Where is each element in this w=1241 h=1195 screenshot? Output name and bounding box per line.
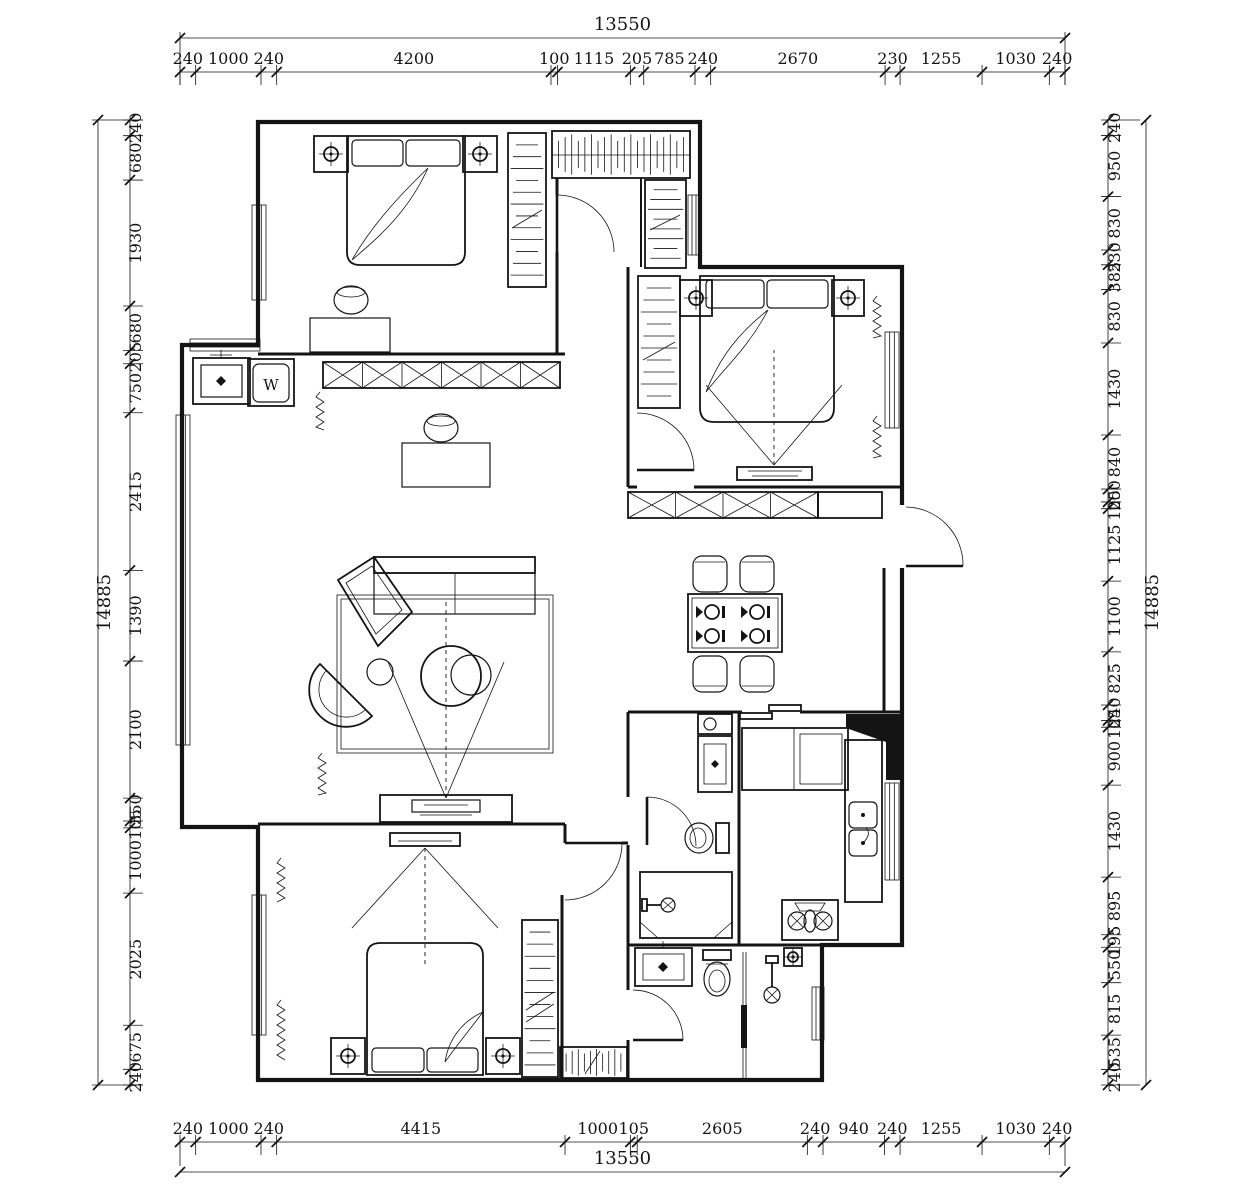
outer-walls [182, 122, 902, 1080]
dim-label: 1430 [1105, 811, 1124, 852]
ceiling-lamp-icon [491, 1044, 515, 1068]
dim-label: 240 [688, 49, 719, 68]
stove-icon [782, 900, 838, 940]
door-arc [565, 843, 622, 900]
dim-label: 240 [173, 1119, 204, 1138]
dim-label: 1100 [1105, 596, 1124, 637]
dim-label: 240 [877, 1119, 908, 1138]
dim-label: 14885 [94, 574, 115, 631]
dim-label: 1430 [1105, 369, 1124, 410]
sliding-door [740, 705, 801, 719]
chair-icon [693, 556, 727, 592]
living-room [309, 362, 560, 822]
dim-label: 100 [539, 49, 570, 68]
ceiling-lamp-icon [684, 286, 708, 310]
closet-column [645, 180, 686, 268]
window [885, 783, 899, 880]
dim-label: 1030 [995, 1119, 1036, 1138]
door-arc [557, 195, 614, 252]
dim-label: 1390 [126, 595, 145, 636]
place-setting-icon [696, 605, 725, 619]
dim-label: 950 [1105, 151, 1124, 182]
chair-icon [693, 656, 727, 692]
dim-label: 1000 [208, 49, 249, 68]
desk [402, 443, 490, 487]
washing-machine-icon: W [248, 359, 294, 406]
dim-label: 13550 [594, 14, 651, 35]
dim-label: 240 [254, 49, 285, 68]
dim-label: 1930 [126, 223, 145, 264]
dim-label: 240 [126, 1062, 145, 1093]
shower-head-icon [642, 898, 675, 912]
tv-icon [706, 350, 842, 480]
curtain-squiggle [873, 416, 881, 458]
dim-label: 895 [1105, 891, 1124, 922]
dim-label: 240 [1105, 112, 1124, 143]
kitchen [742, 714, 900, 940]
dim-label: 750 [126, 373, 145, 404]
coffee-table-icon [421, 646, 491, 706]
tv-icon [352, 833, 498, 965]
vanity-sink-icon [635, 941, 692, 986]
dim-label: 240 [254, 1119, 285, 1138]
dim-label: 2100 [126, 709, 145, 750]
tv-icon [380, 600, 512, 822]
dim-label: 680 [126, 313, 145, 344]
curtain-squiggle [277, 1000, 285, 1060]
dim-label: 4200 [393, 49, 434, 68]
dim-label: 825 [1105, 663, 1124, 694]
side-table-icon [367, 659, 393, 685]
dining-area [688, 556, 782, 692]
cabinet-x [628, 492, 818, 518]
clothes-rail [560, 1047, 627, 1078]
dim-label: 105 [126, 809, 145, 840]
dim-label: 2670 [778, 49, 819, 68]
curtain-squiggle [316, 392, 324, 430]
dimension-annotations: 2401000240420010011152057852402670230125… [92, 14, 1163, 1177]
dim-label: 1000 [126, 840, 145, 881]
dim-label: 240 [1105, 1062, 1124, 1093]
ceiling-lamp-icon [336, 1044, 360, 1068]
clothes-rail [552, 131, 690, 178]
dim-label: 2415 [126, 471, 145, 512]
shower-head-icon [764, 956, 780, 1003]
flue-shaft [846, 714, 900, 780]
curtain-squiggle [318, 753, 326, 795]
ceiling-lamp-icon [468, 142, 492, 166]
dim-label: 940 [838, 1119, 869, 1138]
dim-label: 240 [126, 113, 145, 144]
toilet-icon [703, 950, 731, 996]
toilet-icon [685, 823, 729, 853]
shower-icon [640, 872, 732, 938]
vanity-sink-icon [698, 714, 732, 792]
dim-label: 240 [173, 49, 204, 68]
dim-label: 785 [654, 49, 685, 68]
wardrobe-icon [638, 276, 680, 408]
place-setting-icon [696, 629, 725, 643]
dimension-chain: 2409508302303858301430840200105112511008… [1101, 112, 1163, 1092]
dim-label: 240 [800, 1119, 831, 1138]
laundry-sink-icon [193, 350, 250, 404]
washer-label: W [263, 376, 279, 394]
chair-icon [740, 556, 774, 592]
bedroom-1 [310, 131, 690, 352]
dim-label: 840 [1105, 447, 1124, 478]
dim-label: 1125 [1105, 525, 1124, 566]
chair-icon [740, 656, 774, 692]
dim-label: 14885 [1142, 574, 1163, 631]
bathroom-2 [635, 941, 802, 1078]
stool [334, 286, 368, 314]
dim-label: 1000 [577, 1119, 618, 1138]
dim-label: 105 [618, 1119, 649, 1138]
floor-plan-canvas: W [0, 0, 1241, 1195]
dim-label: 240 [1042, 49, 1073, 68]
dimension-chain: 2401000240420010011152057852402670230125… [173, 14, 1073, 85]
dim-label: 205 [622, 49, 653, 68]
floor-plan-page: W [0, 0, 1241, 1195]
laundry-balcony: W [193, 350, 294, 406]
ceiling-lamp-icon [319, 142, 343, 166]
place-setting-icon [741, 629, 770, 643]
wardrobe-icon [522, 920, 558, 1077]
dim-label: 13550 [594, 1148, 651, 1169]
dim-label: 1000 [208, 1119, 249, 1138]
kitchen-sink-icon [849, 802, 877, 856]
windows [176, 195, 899, 1060]
bathroom-1 [640, 714, 732, 938]
cabinet-x [323, 362, 560, 388]
door-arc [637, 413, 694, 470]
ceiling-lamp-icon [785, 949, 802, 966]
dim-label: 550 [1105, 950, 1124, 981]
dining-table-icon [688, 594, 782, 652]
window [885, 332, 899, 428]
dim-label: 1255 [921, 1119, 962, 1138]
dim-label: 4415 [400, 1119, 441, 1138]
dim-label: 2025 [126, 939, 145, 980]
dim-label: 675 [126, 1032, 145, 1063]
curtain-squiggle [873, 296, 881, 338]
dimension-chain: 2406801930680205750241513902100350105100… [92, 113, 145, 1093]
dim-label: 830 [1105, 301, 1124, 332]
ceiling-lamp-icon [836, 286, 860, 310]
entry-door-arc [906, 507, 963, 566]
dim-label: 240 [1042, 1119, 1073, 1138]
bed-icon [347, 136, 465, 265]
dim-label: 815 [1105, 994, 1124, 1025]
dim-label: 230 [877, 49, 908, 68]
stool [424, 414, 458, 442]
dimension-chain: 2401000240441510001052605240940240125510… [173, 1119, 1073, 1177]
dim-label: 105 [1105, 490, 1124, 521]
dim-label: 385 [1105, 262, 1124, 293]
dim-label: 900 [1105, 741, 1124, 772]
dim-label: 1255 [921, 49, 962, 68]
rug [337, 595, 553, 753]
glass-partition [741, 952, 747, 1078]
wardrobe-icon [508, 133, 546, 287]
place-setting-icon [741, 605, 770, 619]
curtain-squiggle [277, 858, 285, 902]
cabinet [818, 492, 882, 518]
dressing-table [310, 318, 390, 352]
dim-label: 680 [126, 143, 145, 174]
dim-label: 2605 [702, 1119, 743, 1138]
dim-label: 1030 [995, 49, 1036, 68]
dim-label: 105 [1105, 709, 1124, 740]
bedroom-2 [628, 276, 882, 518]
dim-label: 1115 [574, 49, 615, 68]
bed-icon [700, 276, 834, 422]
bedroom-3 [331, 833, 627, 1078]
door-arc [633, 990, 683, 1040]
door-arc [647, 797, 696, 846]
dim-label: 205 [126, 342, 145, 373]
dim-label: 830 [1105, 208, 1124, 239]
sofa-icon [338, 557, 535, 646]
